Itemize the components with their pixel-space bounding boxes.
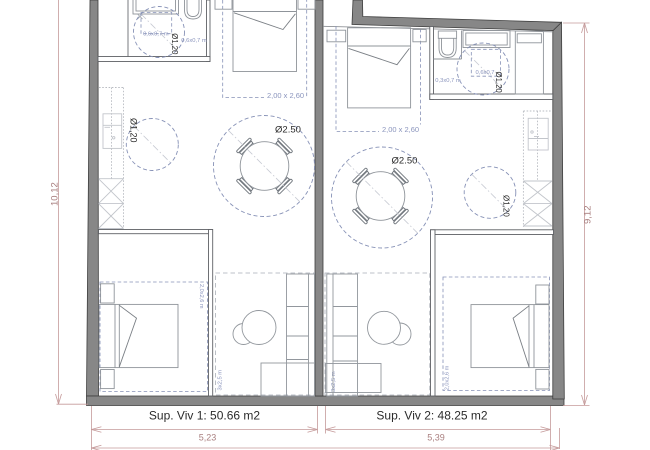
svg-text:3x2,5 m: 3x2,5 m bbox=[331, 371, 337, 392]
svg-text:2,0x2,6 m: 2,0x2,6 m bbox=[444, 365, 450, 390]
svg-text:0,3x0,7 m: 0,3x0,7 m bbox=[435, 78, 461, 84]
svg-text:0,6x0,7 m: 0,6x0,7 m bbox=[181, 38, 207, 44]
svg-text:5,23: 5,23 bbox=[199, 433, 217, 443]
svg-text:Ø1,20: Ø1,20 bbox=[129, 118, 139, 143]
svg-text:0,6x0,7: 0,6x0,7 bbox=[475, 70, 494, 76]
svg-text:9,12: 9,12 bbox=[583, 206, 594, 225]
svg-text:Ø2.50: Ø2.50 bbox=[392, 156, 418, 167]
svg-text:Ø1,20: Ø1,20 bbox=[502, 195, 511, 217]
svg-text:Ø1,20: Ø1,20 bbox=[494, 72, 503, 94]
svg-text:3x2,5 m: 3x2,5 m bbox=[218, 370, 224, 391]
svg-text:Sup. Viv 1: 50.66 m2: Sup. Viv 1: 50.66 m2 bbox=[149, 409, 261, 423]
svg-text:Ø2.50: Ø2.50 bbox=[275, 125, 301, 136]
svg-text:2,00 x 2,60: 2,00 x 2,60 bbox=[382, 125, 419, 134]
svg-text:5,39: 5,39 bbox=[427, 433, 445, 443]
svg-text:Sup. Viv 2: 48.25 m2: Sup. Viv 2: 48.25 m2 bbox=[376, 409, 488, 423]
svg-text:0,6x0,7 m: 0,6x0,7 m bbox=[143, 31, 169, 37]
svg-text:2,00 x 2,60: 2,00 x 2,60 bbox=[267, 91, 304, 100]
svg-text:10,12: 10,12 bbox=[50, 182, 61, 206]
svg-text:2,0x2,6 m: 2,0x2,6 m bbox=[198, 284, 204, 309]
svg-text:Ø1,20: Ø1,20 bbox=[170, 33, 179, 55]
